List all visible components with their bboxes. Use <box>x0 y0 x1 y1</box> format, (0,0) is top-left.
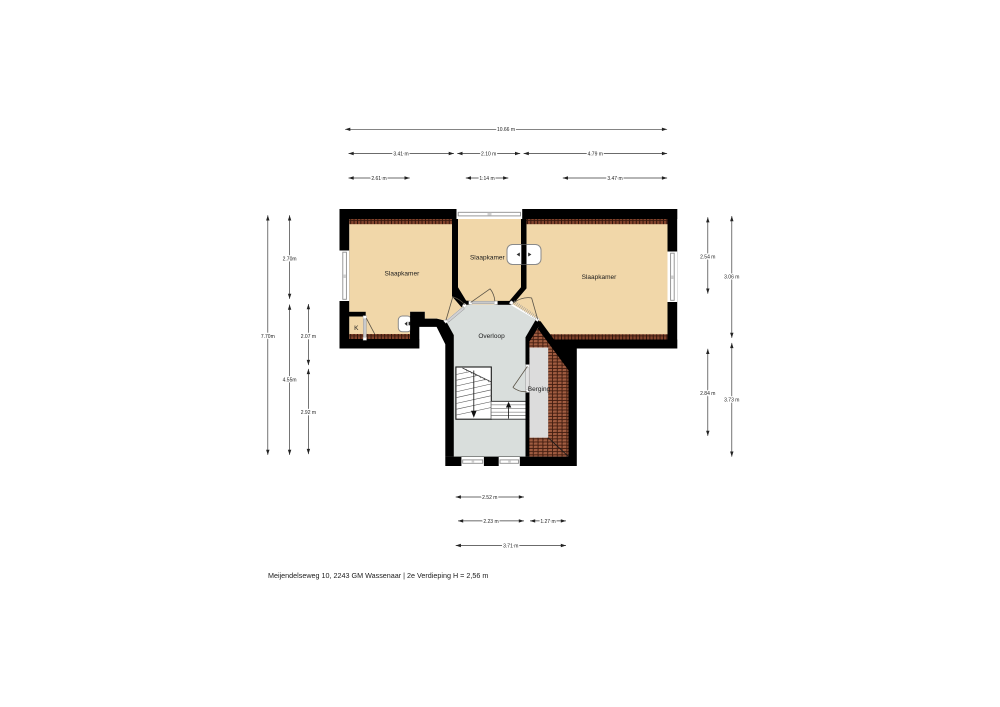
svg-text:3.41 m: 3.41 m <box>393 151 408 157</box>
svg-text:2.23 m: 2.23 m <box>483 519 498 525</box>
svg-text:K: K <box>354 325 359 332</box>
svg-text:3.71 m: 3.71 m <box>503 543 518 549</box>
svg-text:2.92 m: 2.92 m <box>301 410 316 416</box>
svg-text:Meijendelseweg 10, 2243 GM Was: Meijendelseweg 10, 2243 GM Wassenaar | 2… <box>268 571 488 580</box>
svg-text:4.55m: 4.55m <box>283 378 297 384</box>
svg-text:3.73 m: 3.73 m <box>724 397 739 403</box>
svg-text:2.07 m: 2.07 m <box>301 334 316 340</box>
svg-text:Overloop: Overloop <box>478 333 505 340</box>
svg-text:2.70m: 2.70m <box>283 256 297 262</box>
svg-text:4.79 m: 4.79 m <box>588 151 603 157</box>
svg-text:1.27 m: 1.27 m <box>540 519 555 525</box>
svg-text:Slaapkamer: Slaapkamer <box>470 254 506 261</box>
svg-text:7.70m: 7.70m <box>261 334 275 340</box>
svg-text:3.47 m: 3.47 m <box>607 176 622 182</box>
svg-text:2.10 m: 2.10 m <box>481 151 496 157</box>
svg-text:Slaapkamer: Slaapkamer <box>582 274 618 281</box>
svg-text:2.54 m: 2.54 m <box>700 255 715 261</box>
svg-text:2.52 m: 2.52 m <box>482 495 497 501</box>
svg-text:2.84 m: 2.84 m <box>700 391 715 397</box>
svg-text:2.61 m: 2.61 m <box>371 176 386 182</box>
svg-text:1.14 m: 1.14 m <box>479 176 494 182</box>
svg-text:10.66 m: 10.66 m <box>497 127 515 133</box>
svg-text:3.06 m: 3.06 m <box>724 275 739 281</box>
svg-text:Slaapkamer: Slaapkamer <box>385 270 421 277</box>
svg-text:Berging: Berging <box>528 386 551 393</box>
